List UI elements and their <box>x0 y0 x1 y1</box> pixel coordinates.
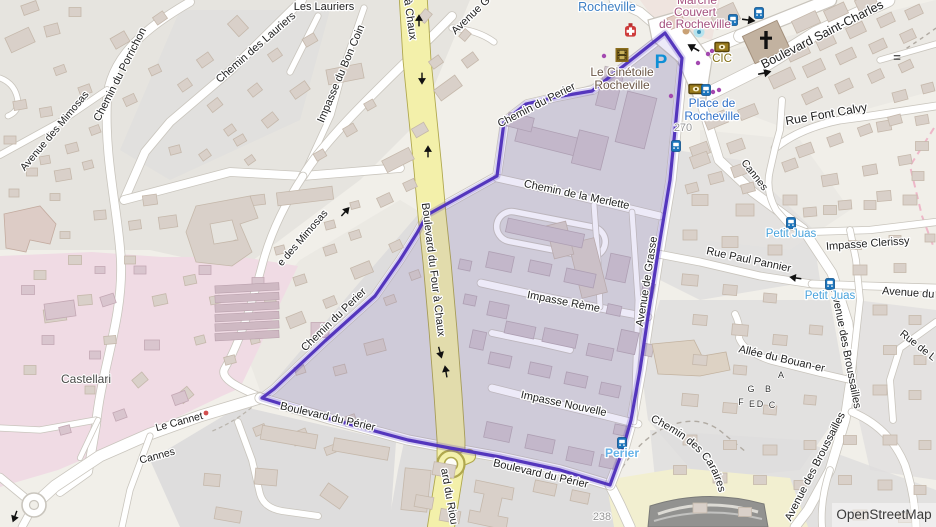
svg-text:Perier: Perier <box>605 446 639 460</box>
svg-text:Castellari: Castellari <box>61 372 111 386</box>
svg-text:Rocheville: Rocheville <box>684 109 740 123</box>
svg-text:A: A <box>778 370 784 380</box>
svg-text:G: G <box>747 384 754 394</box>
svg-text:B: B <box>765 384 771 394</box>
svg-text:Rocheville: Rocheville <box>594 78 650 92</box>
svg-text:Petit Juas: Petit Juas <box>766 228 817 240</box>
svg-text:Rocheville: Rocheville <box>578 0 636 14</box>
svg-text:E: E <box>749 399 755 409</box>
svg-text:Place de: Place de <box>689 96 736 110</box>
svg-text:=: = <box>893 50 901 65</box>
svg-text:OpenStreetMap: OpenStreetMap <box>836 507 931 522</box>
svg-text:270: 270 <box>674 122 692 134</box>
svg-text:Les Lauriers: Les Lauriers <box>294 1 355 13</box>
svg-text:238: 238 <box>593 511 611 523</box>
svg-text:F: F <box>738 397 744 407</box>
svg-text:Le Cinétoile: Le Cinétoile <box>590 65 654 79</box>
svg-text:Petit Juas: Petit Juas <box>805 290 856 302</box>
svg-text:C: C <box>769 400 776 410</box>
svg-text:D: D <box>757 399 764 409</box>
svg-text:CIC: CIC <box>712 53 732 65</box>
svg-text:de Rocheville: de Rocheville <box>659 17 731 31</box>
svg-text:P: P <box>655 52 668 73</box>
